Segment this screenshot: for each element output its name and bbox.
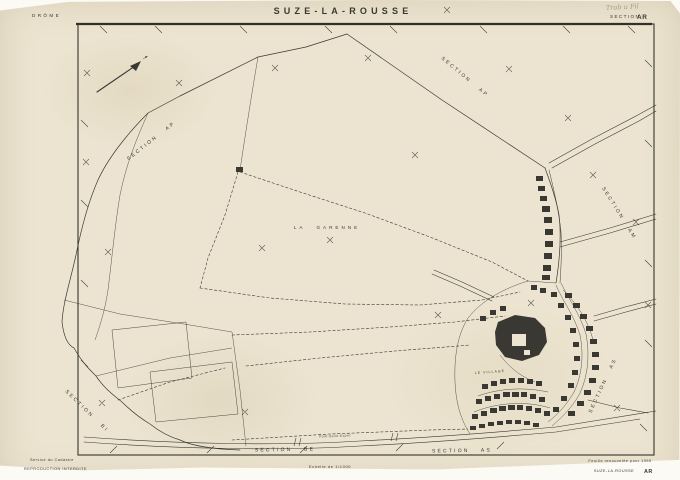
label-section-am: SECTION AM — [600, 186, 637, 241]
label-road-south: Pont-Saint-Esprit — [319, 433, 352, 438]
scanned-cadastral-sheet: { "colors": { "paper": "#ece4d0", "ink":… — [0, 0, 680, 480]
section-code: AR — [637, 14, 647, 21]
frame-grid-ticks — [81, 26, 652, 453]
handwritten-note: Trab u Fil — [606, 2, 639, 12]
label-section-ap-north: SECTION AP — [440, 56, 490, 99]
chateau — [495, 315, 547, 361]
label-section-ap-west: SECTION AP — [126, 120, 177, 162]
label-section-as-south: SECTION AS — [432, 447, 492, 454]
map-canvas: DRÔME SUZE-LA-ROUSSE Trab u Fil SECTION … — [0, 0, 680, 480]
footer-sheet-name: SUZE-LA-ROUSSE — [594, 469, 634, 473]
section-label: SECTION — [610, 14, 640, 19]
label-section-be: SECTION BE — [255, 446, 315, 453]
roads — [84, 105, 656, 449]
map-frame — [76, 24, 654, 455]
map-labels: DRÔME SUZE-LA-ROUSSE Trab u Fil SECTION … — [24, 2, 653, 475]
footer-service: Service du Cadastre — [30, 458, 74, 462]
footer-renewal-note: Feuille renouvelée pour 1955 — [588, 459, 651, 463]
footer-sheet-code: AR — [644, 469, 653, 475]
village — [470, 176, 599, 430]
footpaths-dashed — [118, 172, 528, 440]
label-section-bi: SECTION BI — [64, 389, 110, 434]
department-title: DRÔME — [32, 12, 61, 18]
label-la-garenne: LA GARENNE — [294, 225, 360, 230]
footer-scale: Echelle de 1/1000 — [309, 464, 351, 469]
faubourg-buildings-row — [536, 176, 553, 280]
footer-reproduction: REPRODUCTION INTERDITE — [24, 467, 87, 471]
north-arrow-icon — [97, 56, 148, 92]
commune-title: SUZE-LA-ROUSSE — [274, 6, 413, 16]
label-le-village: LE VILLAGE — [475, 369, 505, 375]
village-buildings-north-cluster — [480, 285, 546, 321]
